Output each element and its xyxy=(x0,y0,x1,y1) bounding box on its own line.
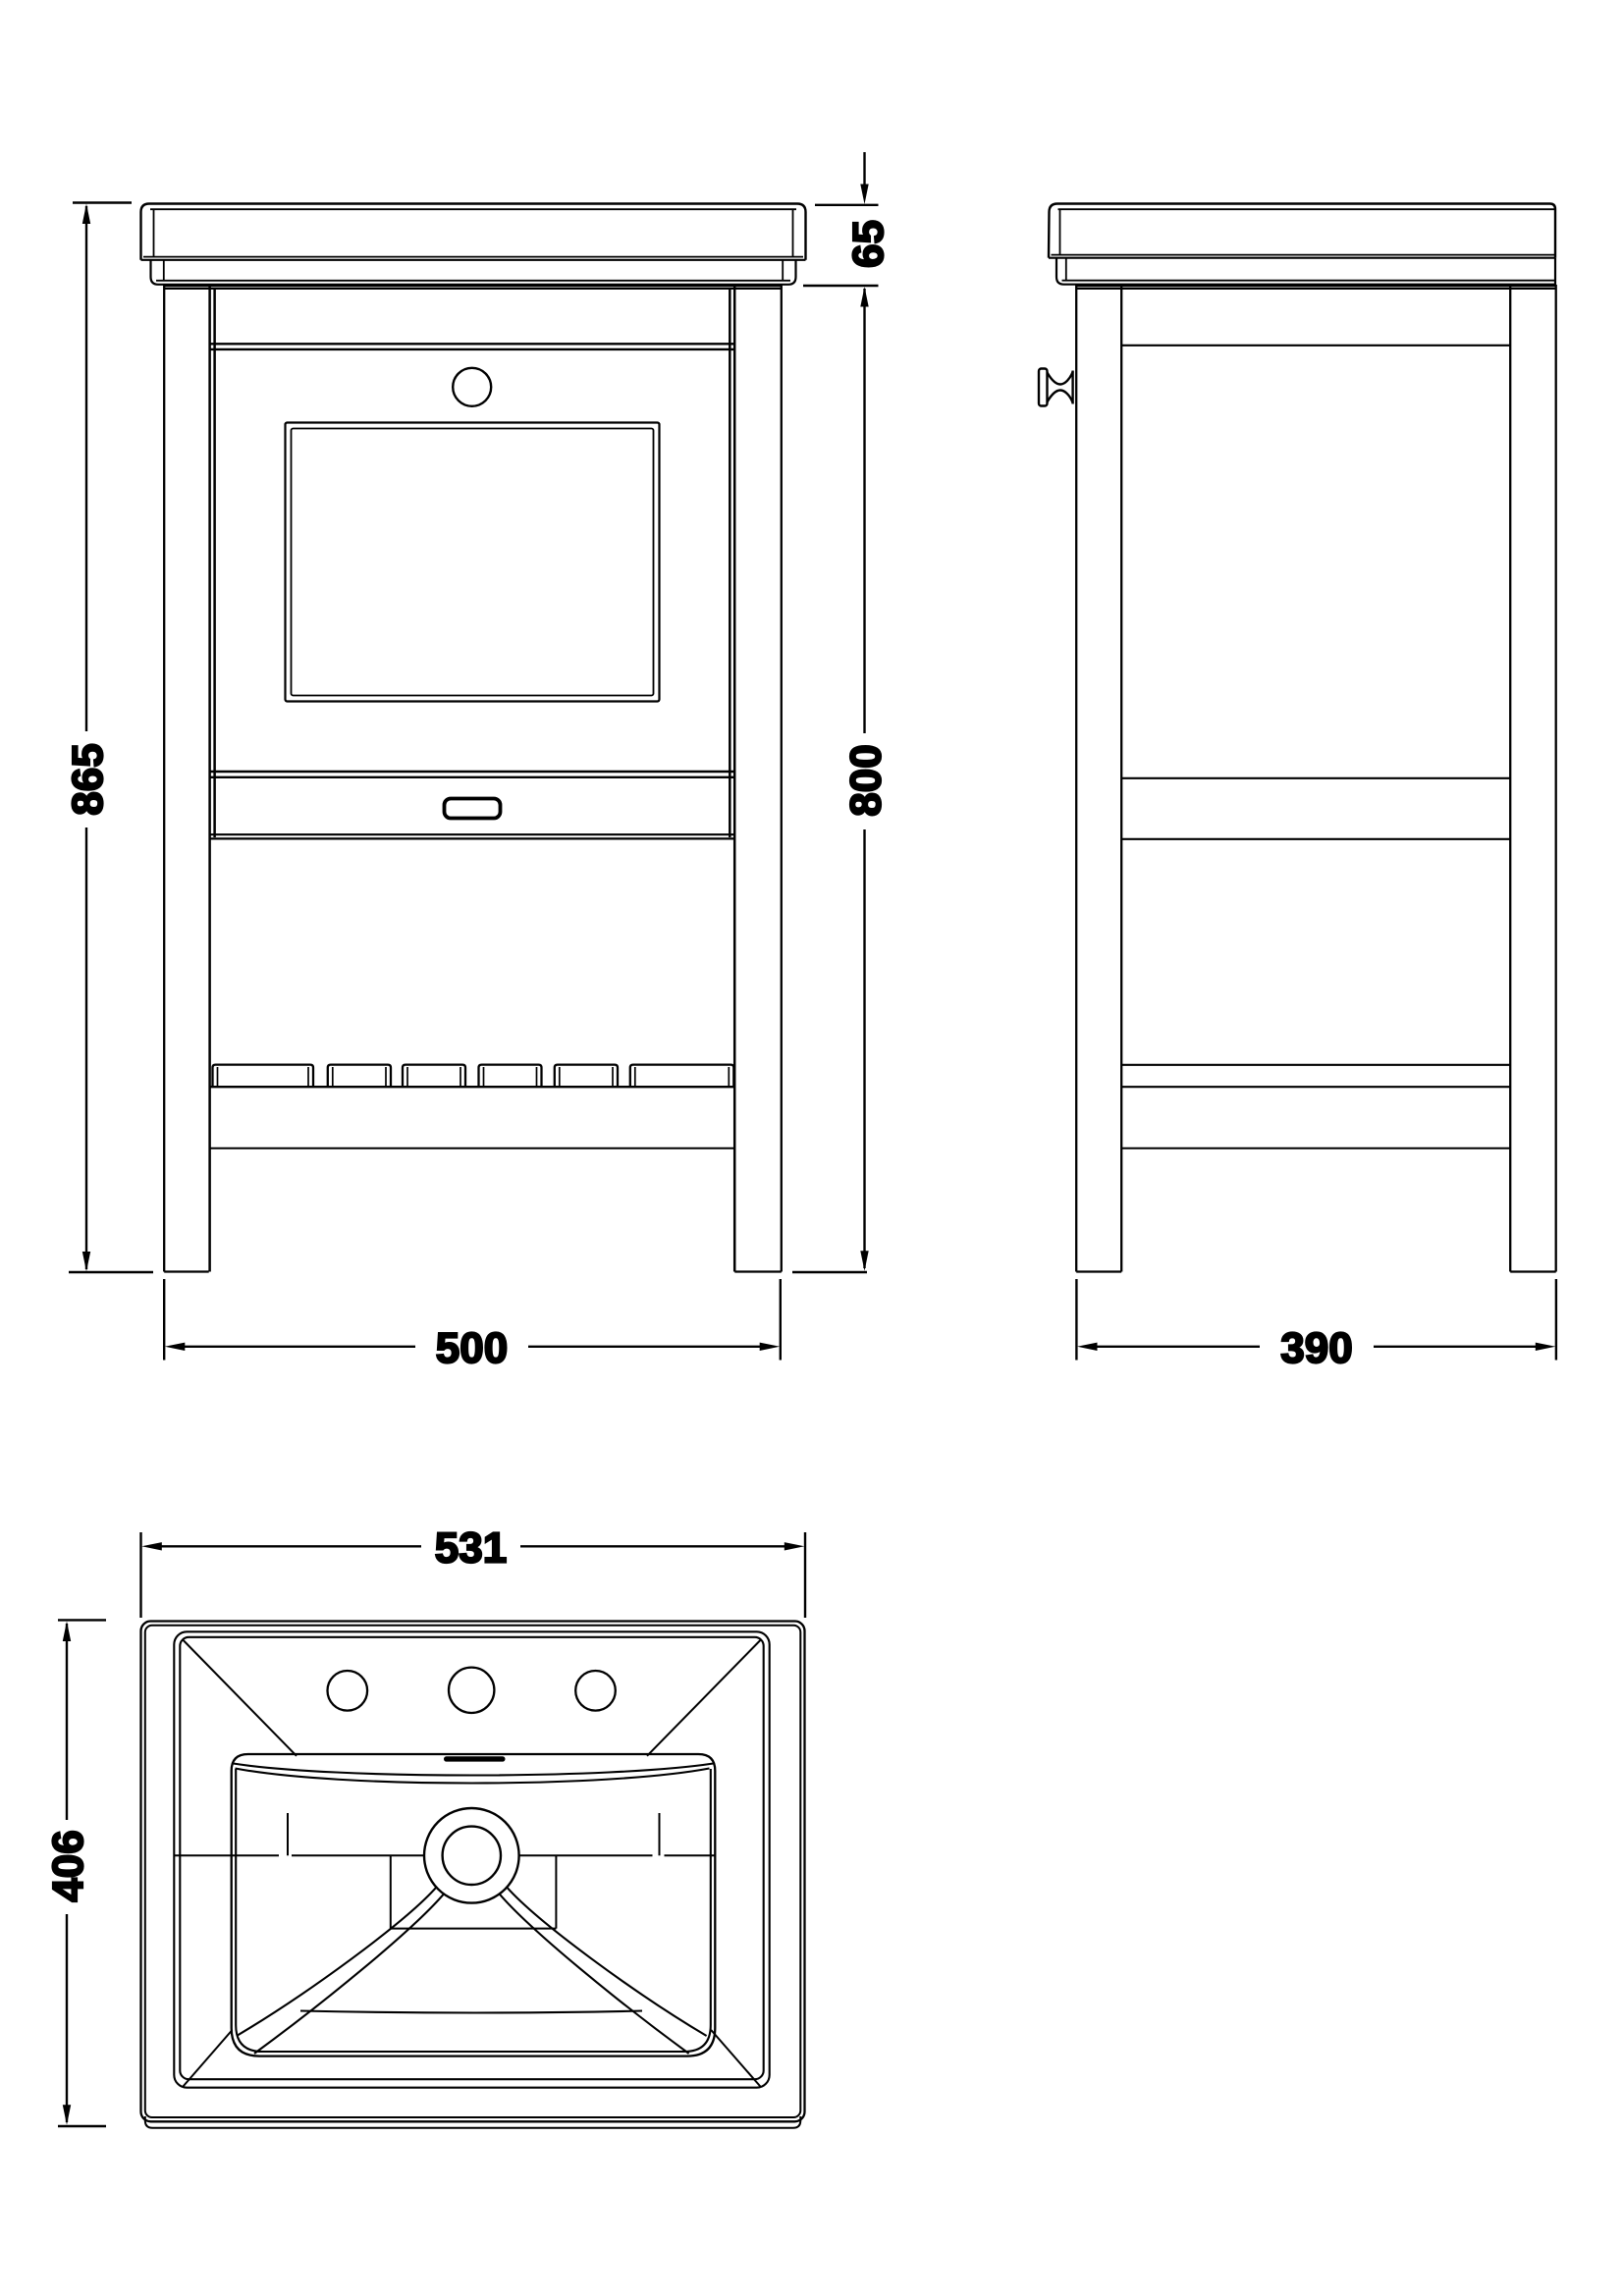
svg-text:406: 406 xyxy=(44,1830,92,1901)
svg-text:800: 800 xyxy=(842,744,891,816)
svg-text:865: 865 xyxy=(64,743,112,815)
svg-text:531: 531 xyxy=(435,1523,507,1572)
svg-text:500: 500 xyxy=(436,1324,508,1372)
svg-text:65: 65 xyxy=(844,220,893,268)
svg-text:390: 390 xyxy=(1280,1324,1352,1372)
